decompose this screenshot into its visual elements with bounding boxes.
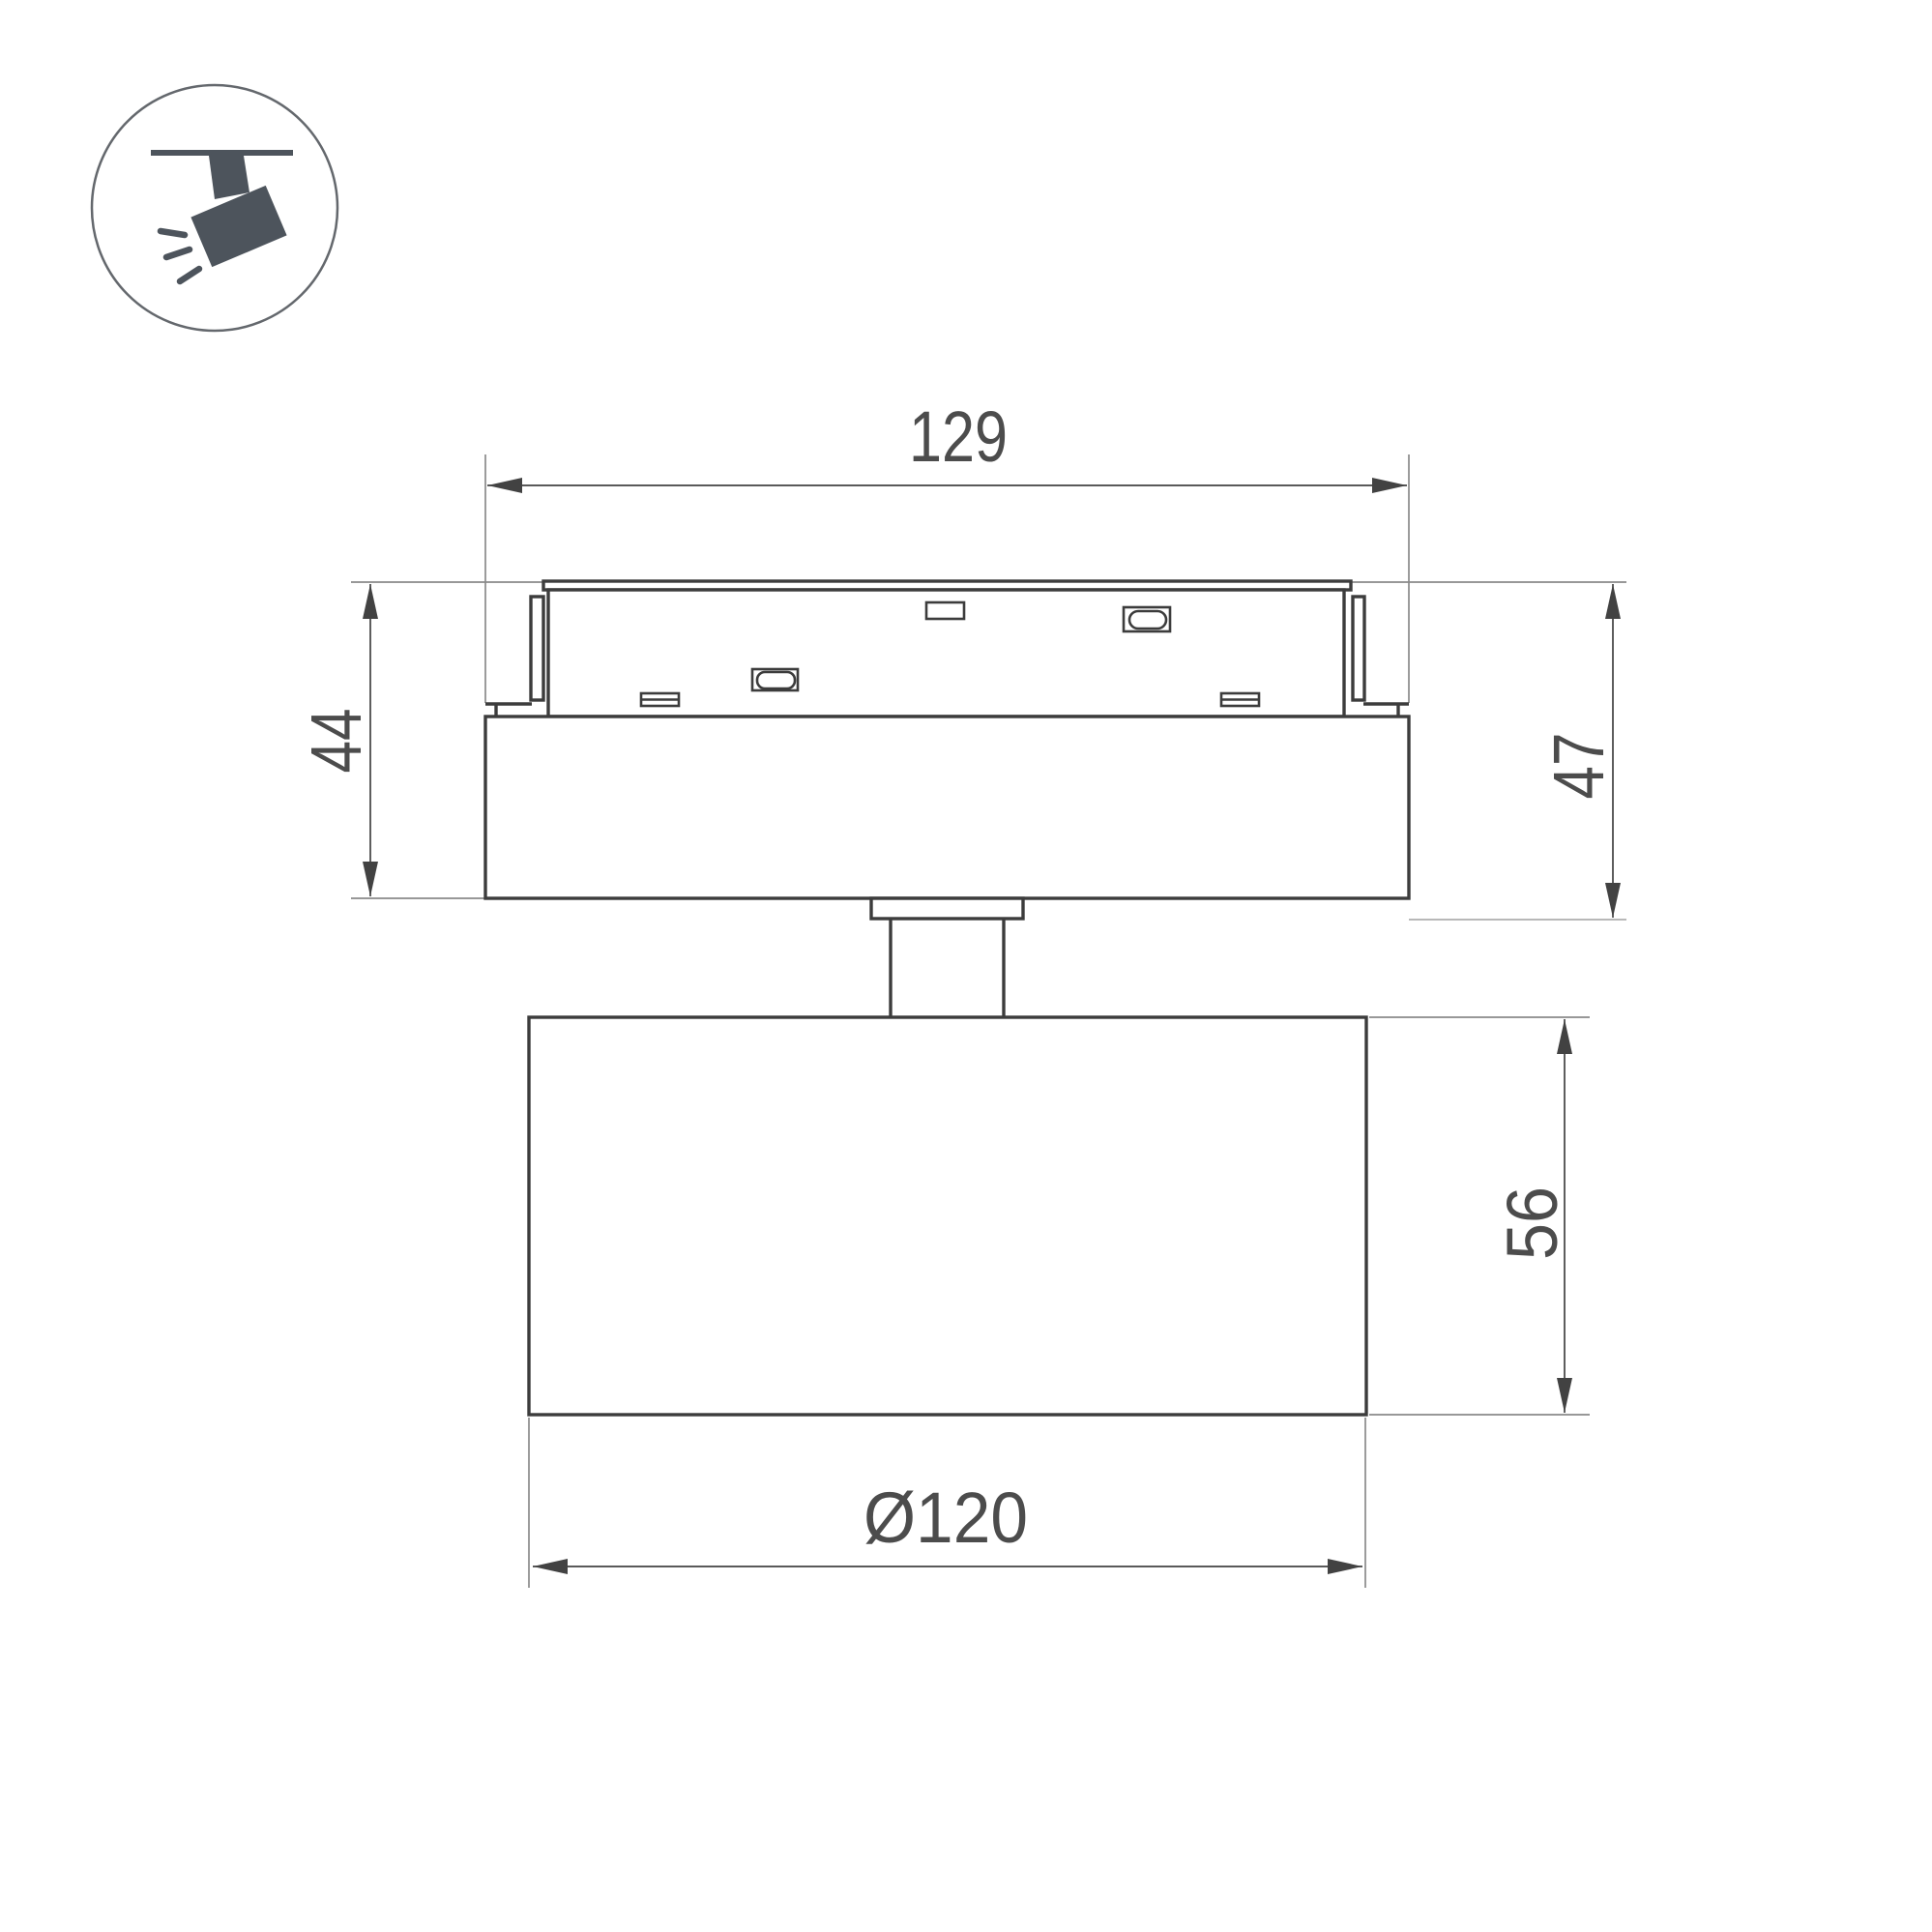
arrow-right-icon — [1372, 478, 1407, 493]
track-light-icon — [92, 85, 337, 331]
driver-housing — [485, 717, 1409, 898]
dimension-lamp-body-height: 56 — [1492, 1019, 1572, 1413]
track-adapter-assembly — [485, 581, 1409, 1017]
arrow-down-icon — [363, 862, 378, 896]
dim-label-lamp-body-height: 56 — [1492, 1186, 1572, 1260]
arrow-down-icon — [1605, 883, 1621, 918]
hinge-knuckle — [871, 898, 1023, 919]
arrow-down-icon — [1557, 1378, 1572, 1413]
mounting-clip-left — [531, 597, 543, 700]
dim-label-overall-mount-height: 47 — [1538, 733, 1619, 800]
arrow-left-icon — [533, 1559, 568, 1574]
arrow-up-icon — [363, 584, 378, 619]
dim-label-track-width: 129 — [909, 396, 1008, 477]
arrow-right-icon — [1328, 1559, 1362, 1574]
lamp-cylinder — [529, 1017, 1366, 1415]
dim-label-lamp-body-diameter: Ø120 — [864, 1478, 1028, 1558]
dimension-lamp-body-diameter: Ø120 — [533, 1478, 1362, 1574]
mounting-clip-right — [1353, 597, 1364, 700]
icon-track-bar — [151, 150, 293, 156]
pivot-stem — [891, 919, 1004, 1017]
dimension-mount-height: 44 — [296, 584, 378, 896]
arrow-up-icon — [1605, 584, 1621, 619]
arrow-left-icon — [487, 478, 522, 493]
dim-label-mount-height: 44 — [296, 709, 376, 774]
icon-stem — [209, 156, 249, 199]
technical-drawing-canvas: 129 44 47 56 Ø120 — [0, 0, 1932, 1932]
dimension-overall-mount-height: 47 — [1538, 584, 1621, 918]
arrow-up-icon — [1557, 1019, 1572, 1054]
dimension-track-width: 129 — [487, 396, 1407, 493]
contact-window — [926, 602, 964, 619]
